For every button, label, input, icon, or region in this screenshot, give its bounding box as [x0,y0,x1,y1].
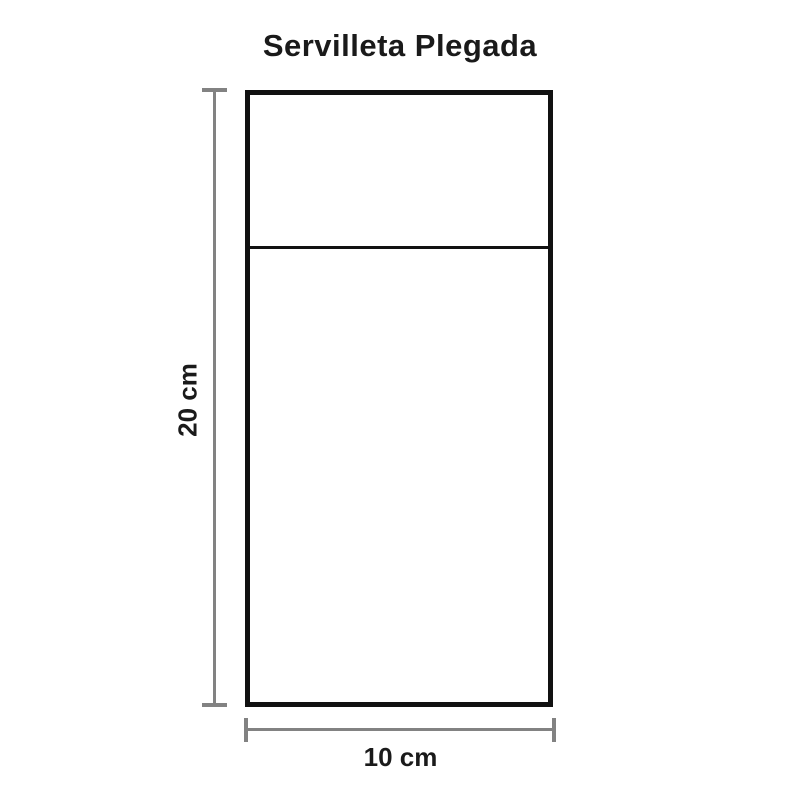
width-dimension-cap-right [552,718,556,742]
height-dimension-cap-bottom [202,703,227,707]
napkin-outline [245,90,553,707]
napkin-fold-line [249,246,549,249]
width-dimension-label: 10 cm [245,742,556,773]
width-dimension-line [245,728,556,731]
diagram-canvas: Servilleta Plegada 20 cm 10 cm [0,0,800,800]
height-dimension-line [213,90,216,707]
height-dimension-label: 20 cm [173,363,204,437]
diagram-title: Servilleta Plegada [0,28,800,64]
